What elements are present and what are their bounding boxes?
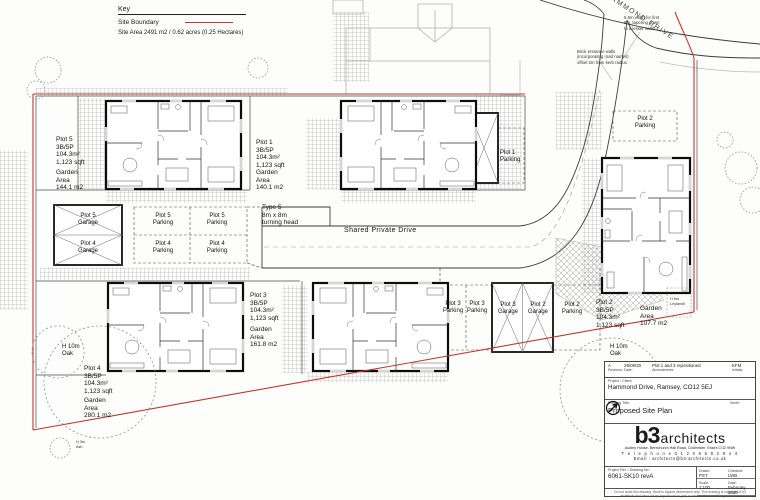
plot5-parking-a: Plot 5 Parking [144,213,182,227]
plot4-garage-label: Plot 4 Garage [68,241,108,255]
north-arrow-icon [605,400,621,416]
hammond-drive-road [540,0,760,80]
road-width-note: 5.5m width for first 8m, tapering down t… [624,15,659,31]
plot5-parking-b: Plot 5 Parking [198,213,236,227]
plot2-info: Plot 2 3B/5P 104.3m² 1,123 sqft [596,299,625,330]
date-value: February 2020 [728,485,746,495]
plot3-parking-b: Plot 3 Parking [464,301,490,315]
tree-right-edge [725,152,757,184]
plot5-garage-label: Plot 5 Garage [68,213,108,227]
plot5-garden: Garden Area 144.1 m2 [56,169,83,192]
plot-3-house [312,282,449,372]
firm-email: Email : architects@b3-architects.co.uk [608,456,752,461]
plot1-parking-label: Plot 1 Parking [500,150,530,164]
firm-row: b3 architects Audley House, Berechurch H… [605,424,755,467]
ref-row: Project Ref. / Drawing No.: 6061-SK10 re… [605,467,755,489]
drawing-number: 6061-SK10 revA [608,473,693,480]
plot-4-house [107,282,244,372]
key-legend: Key Site Boundary Site Area 2491 m2 / 0.… [118,6,318,36]
plot-1-house [340,100,477,190]
drawn-by: PST [699,473,708,478]
ash-label: H 3m Ash [76,440,85,449]
checked-by: LWB [728,473,737,478]
drawing-title: Proposed Site Plan [608,406,730,415]
plot4-garden: Garden Area 280.1 m2 [84,397,111,420]
plot3-parking-a: Plot 3 Parking [440,301,466,315]
leylandii-label: H 6m Leylandii [670,297,685,306]
oak-left-label: H 10m Oak [62,344,80,358]
plot4-parking-b: Plot 4 Parking [198,241,236,255]
turning-head-label: Type 5 8m x 8m turning head [262,204,298,227]
project-row: Project / Client: Hammond Drive, Ramsey,… [605,378,755,400]
plot5-info: Plot 5 3B/5P 104.3m² 1,123 sqft [56,136,85,167]
plot2-parking-label: Plot 2 Parking [554,302,590,316]
plot2-garage-label: Plot 2 Garage [523,302,553,316]
plot2-garden: Garden Area 107.7 m2 [640,305,667,328]
entrance-walls-note: Brick entrance walls (incorporating road… [577,49,629,65]
plot2-parking-top: Plot 2 Parking [624,116,666,130]
revision-row: A Revision: 29/09/20 Date: Plot 1 and 3 … [605,362,755,378]
plot3-plot2-garage [492,283,553,352]
plot1-info: Plot 1 3B/5P 104.3m² 1,123 sqft [256,139,285,170]
ash-tree [50,438,70,458]
drawing-title-row: Drawing Title: Proposed Site Plan North: [605,400,755,424]
title-block: A Revision: 29/09/20 Date: Plot 1 and 3 … [604,361,756,497]
shared-private-drive-label: Shared Private Drive [344,227,417,235]
key-title: Key [118,6,246,15]
plot4-info: Plot 4 3B/5P 104.3m² 1,123 sqft [84,365,113,396]
plot4-parking-a: Plot 4 Parking [144,241,182,255]
site-area-label: Site Area 2491 m2 / 0.62 acres (0.25 Hec… [118,30,318,36]
oak-right-label: H 10m Oak [610,344,628,358]
plot-2-house [601,157,691,294]
plot-5-house [105,100,242,190]
scale-value: 1:100 [699,485,710,490]
firm-logo: b3 architects [608,425,752,446]
plot3-garden: Garden Area 161.8 m2 [250,326,277,349]
site-boundary-label: Site Boundary [118,19,159,26]
site-plan-sheet: Key Site Boundary Site Area 2491 m2 / 0.… [0,0,760,500]
plot1-garden: Garden Area 140.1 m2 [256,169,283,192]
project-name: Hammond Drive, Ramsey, CO12 5EJ [608,384,752,391]
plot3-info: Plot 3 3B/5P 104.3m² 1,123 sqft [250,292,279,323]
site-boundary-swatch [185,22,233,23]
plot3-garage-label: Plot 3 Garage [493,302,523,316]
